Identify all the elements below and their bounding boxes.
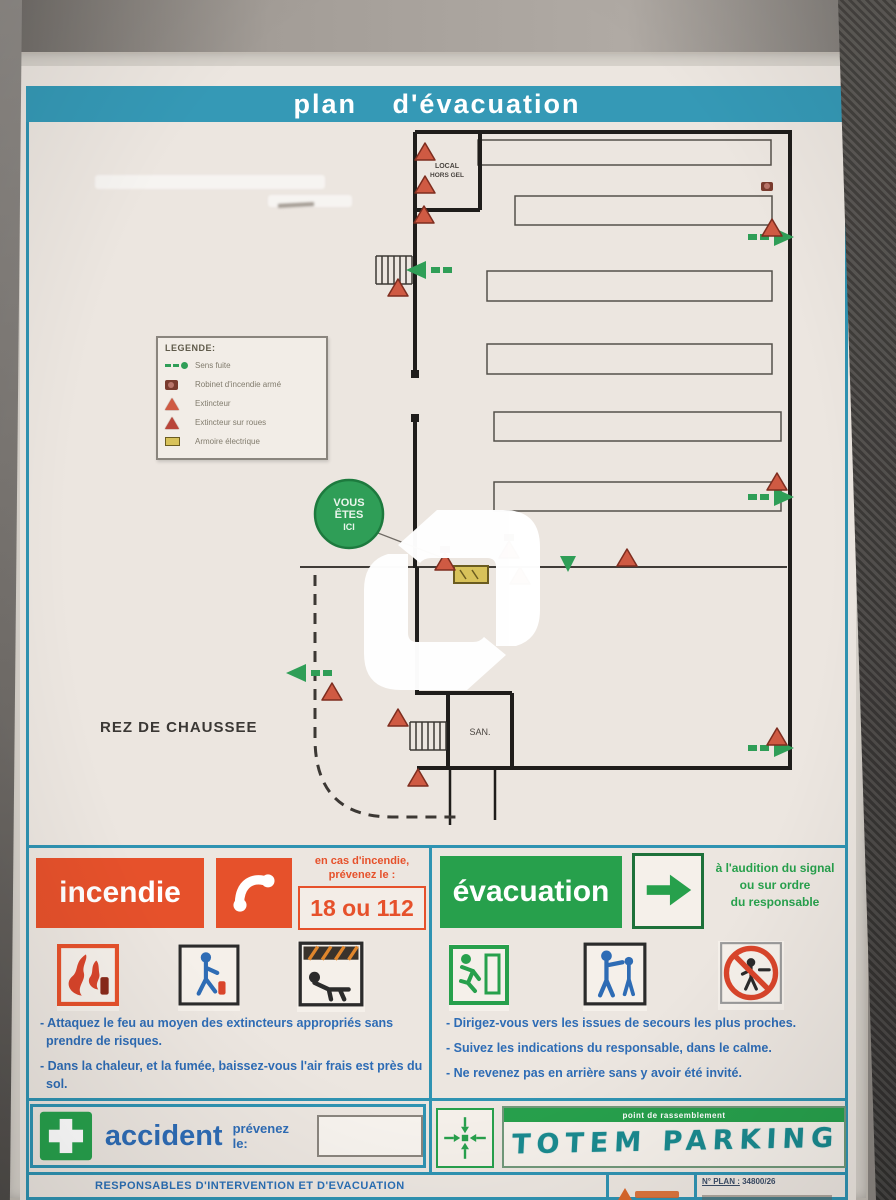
person-with-extinguisher-pictogram (178, 944, 240, 1011)
divider (26, 1172, 848, 1175)
storage-racks (478, 140, 781, 511)
emergency-number: 18 ou 112 (298, 886, 426, 930)
divider (26, 845, 848, 848)
crawl-under-smoke-pictogram (297, 941, 365, 1012)
brand-logo-mark (618, 1188, 632, 1200)
emergency-exit-pictogram (449, 944, 509, 1011)
instruction: - Suivez les indications du responsable,… (442, 1039, 842, 1057)
assembly-point-icon (436, 1108, 494, 1168)
room-label-local2: HORS GEL (430, 172, 464, 179)
legend-row: Extincteur sur roues (165, 413, 319, 432)
fire-hose-reel-icon (761, 182, 773, 191)
evacuation-notice: à l'audition du signal ou sur ordre du r… (704, 860, 846, 910)
instruction: - Dans la chaleur, et la fumée, baissez-… (36, 1057, 426, 1093)
divider (606, 1172, 609, 1200)
page-title: plan d'évacuation (26, 86, 848, 122)
floor-label: REZ DE CHAUSSEE (100, 719, 258, 736)
legend-row: Robinet d'incendie armé (165, 375, 319, 394)
walls (415, 132, 790, 825)
you-are-here-line1: VOUS (333, 497, 364, 509)
fire-hose-reel-icon (165, 380, 195, 390)
accident-panel: accident prévenez le: (30, 1104, 426, 1168)
wall-background-top (0, 0, 896, 60)
assembly-point-panel: point de rassemblement TOTEM PARKING (502, 1106, 846, 1168)
accident-label: accident (105, 1120, 223, 1153)
evacuation-instructions: - Dirigez-vous vers les issues de secour… (442, 1014, 842, 1089)
you-are-here-badge: VOUS ÊTES ICI (315, 480, 383, 548)
first-aid-cross-icon (39, 1110, 93, 1162)
evacuation-header: évacuation (440, 856, 622, 928)
incendie-instructions: - Attaquez le feu au moyen des extincteu… (36, 1014, 426, 1101)
phone-icon (216, 858, 292, 928)
incendie-header: incendie (36, 858, 204, 928)
plan-number: N° PLAN : 34800/26 (702, 1177, 775, 1186)
legend-row: Armoire électrique (165, 432, 319, 451)
electrical-cabinet-icon (165, 437, 195, 446)
route-marker-icon (560, 556, 576, 572)
escape-route-icon (165, 362, 195, 369)
room-label-san: SAN. (469, 727, 490, 737)
follow-guide-pictogram (583, 942, 647, 1011)
instruction: - Attaquez le feu au moyen des extincteu… (36, 1014, 426, 1050)
fire-extinguisher-pictogram (57, 944, 119, 1011)
room-label-local: LOCAL (435, 163, 460, 170)
watermark-logo (364, 510, 540, 690)
no-return-pictogram (718, 941, 784, 1010)
accident-notice: prévenez le: (233, 1121, 305, 1151)
legend-row: Sens fuite (165, 356, 319, 375)
evacuation-plan-photo: plan d'évacuation (0, 0, 896, 1200)
accident-phone-box (317, 1115, 423, 1157)
wheeled-extinguisher-icon (165, 417, 195, 429)
divider (694, 1172, 697, 1200)
you-are-here-line2: ÊTES (335, 508, 364, 521)
assembly-band-label: point de rassemblement (504, 1108, 844, 1122)
brand-logo (618, 1188, 679, 1200)
legend: LEGENDE: Sens fuite Robinet d'incendie a… (156, 336, 328, 460)
floor-plan: VOUS ÊTES ICI LOCAL HORS GEL SAN. REZ DE… (30, 120, 844, 845)
brand-logo-wordmark (635, 1191, 679, 1198)
cut-off-text (702, 1195, 832, 1200)
legend-title: LEGENDE: (165, 343, 319, 353)
divider (429, 845, 432, 1172)
legend-row: Extincteur (165, 394, 319, 413)
responsables-label: RESPONSABLES D'INTERVENTION ET D'EVACUAT… (95, 1180, 405, 1192)
instruction: - Dirigez-vous vers les issues de secour… (442, 1014, 842, 1032)
handwritten-assembly-location: TOTEM PARKING (511, 1123, 844, 1161)
incendie-notice: en cas d'incendie, prévenez le : (298, 854, 426, 883)
instruction: - Ne revenez pas en arrière sans y avoir… (442, 1064, 842, 1082)
electrical-cabinet-icon (454, 566, 488, 583)
exit-arrow-icon (632, 853, 704, 929)
extinguisher-icon (165, 398, 195, 410)
you-are-here-line3: ICI (343, 522, 355, 532)
